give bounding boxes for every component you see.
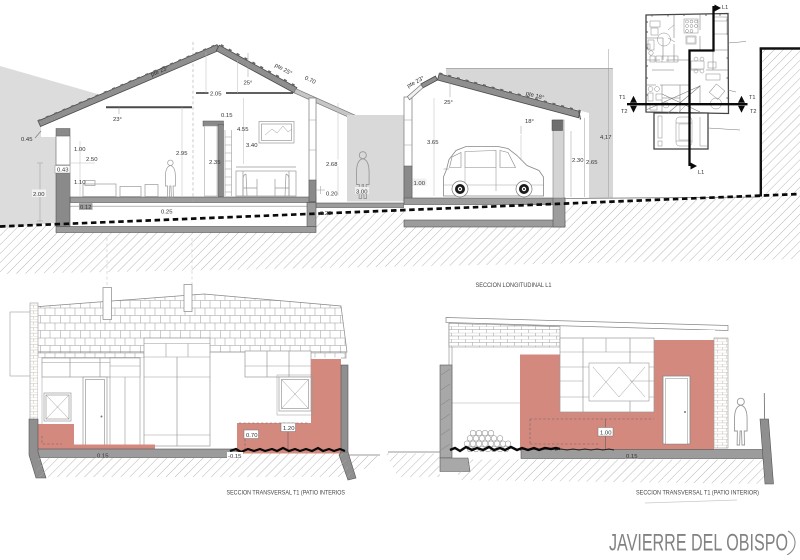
svg-text:2.35: 2.35 xyxy=(209,160,221,166)
svg-text:T2: T2 xyxy=(621,109,628,115)
svg-text:2.30: 2.30 xyxy=(572,158,584,164)
svg-text:2.95: 2.95 xyxy=(176,151,188,157)
svg-text:T1: T1 xyxy=(749,95,756,101)
svg-text:0.43: 0.43 xyxy=(57,168,69,174)
svg-text:0.15: 0.15 xyxy=(626,454,638,460)
svg-text:SECCION LONGITUDINAL L1: SECCION LONGITUDINAL L1 xyxy=(476,282,552,289)
svg-text:0.25: 0.25 xyxy=(320,211,332,217)
svg-text:4,17: 4,17 xyxy=(600,135,611,141)
svg-text:0.45: 0.45 xyxy=(21,137,33,143)
svg-text:3.00: 3.00 xyxy=(356,190,368,196)
svg-text:1.00: 1.00 xyxy=(414,181,426,187)
svg-text:1.20: 1.20 xyxy=(283,426,295,432)
svg-text:3.40: 3.40 xyxy=(246,143,258,149)
svg-text:1.00: 1.00 xyxy=(74,147,86,153)
svg-text:T2: T2 xyxy=(750,109,757,115)
svg-text:1.00: 1.00 xyxy=(600,431,612,437)
svg-text:3.65: 3.65 xyxy=(427,140,439,146)
svg-text:1.10: 1.10 xyxy=(74,180,86,186)
svg-text:2.05: 2.05 xyxy=(210,92,222,98)
svg-text:-0.15: -0.15 xyxy=(228,454,242,460)
svg-text:18°: 18° xyxy=(525,119,534,125)
svg-text:0.15: 0.15 xyxy=(97,454,109,460)
svg-text:23°: 23° xyxy=(113,117,122,123)
svg-text:JAVIERRE DEL OBISPO: JAVIERRE DEL OBISPO xyxy=(609,530,788,556)
svg-text:4.55: 4.55 xyxy=(237,127,249,133)
svg-text:SECCION TRANSVERSAL T1 (PATIO: SECCION TRANSVERSAL T1 (PATIO INTERIOS xyxy=(227,490,346,497)
svg-text:0.15: 0.15 xyxy=(221,113,233,119)
svg-text:2.50: 2.50 xyxy=(86,157,98,163)
svg-text:0.25: 0.25 xyxy=(161,210,173,216)
svg-text:L1: L1 xyxy=(722,5,728,11)
svg-text:0.20: 0.20 xyxy=(326,192,338,198)
svg-text:SECCION TRANSVERSAL T1 (PATIO: SECCION TRANSVERSAL T1 (PATIO INTERIOR) xyxy=(636,489,759,496)
svg-text:L1: L1 xyxy=(698,170,704,176)
svg-text:0.70: 0.70 xyxy=(246,433,258,439)
svg-text:T1: T1 xyxy=(619,95,626,101)
svg-text:25°: 25° xyxy=(244,81,253,87)
svg-text:2.65: 2.65 xyxy=(586,160,598,166)
svg-text:0.12: 0.12 xyxy=(80,205,91,211)
svg-text:2.68: 2.68 xyxy=(326,162,338,168)
svg-text:25°: 25° xyxy=(444,100,453,106)
svg-text:2.00: 2.00 xyxy=(33,192,45,198)
